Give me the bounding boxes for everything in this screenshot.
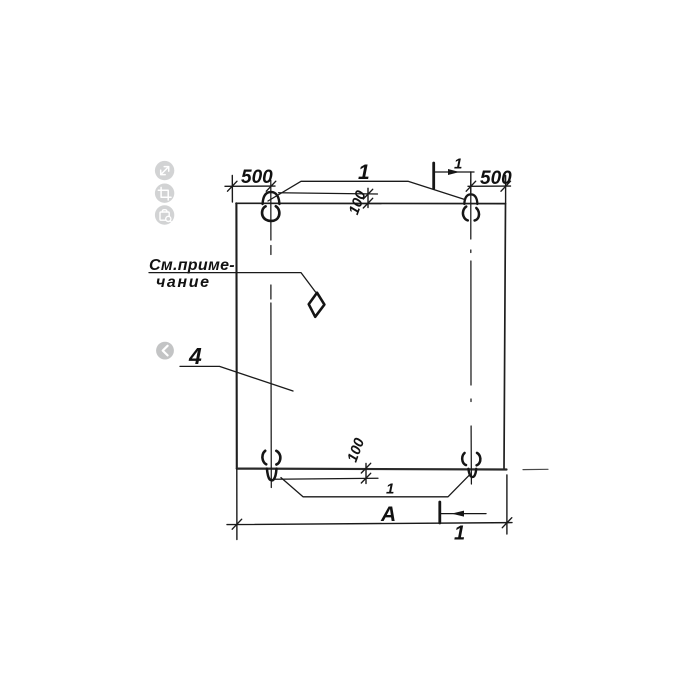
svg-text:1: 1 [454,156,462,173]
svg-text:500: 500 [480,168,512,189]
svg-text:1: 1 [358,161,370,184]
svg-text:100: 100 [345,436,368,464]
svg-text:500: 500 [241,167,273,188]
svg-text:См.приме-: См.приме- [149,257,235,274]
svg-text:1: 1 [386,481,394,498]
svg-text:100: 100 [346,189,369,217]
svg-text:чание: чание [156,274,211,291]
svg-text:А: А [380,503,396,526]
svg-text:1: 1 [454,523,465,545]
svg-text:4: 4 [188,343,202,369]
